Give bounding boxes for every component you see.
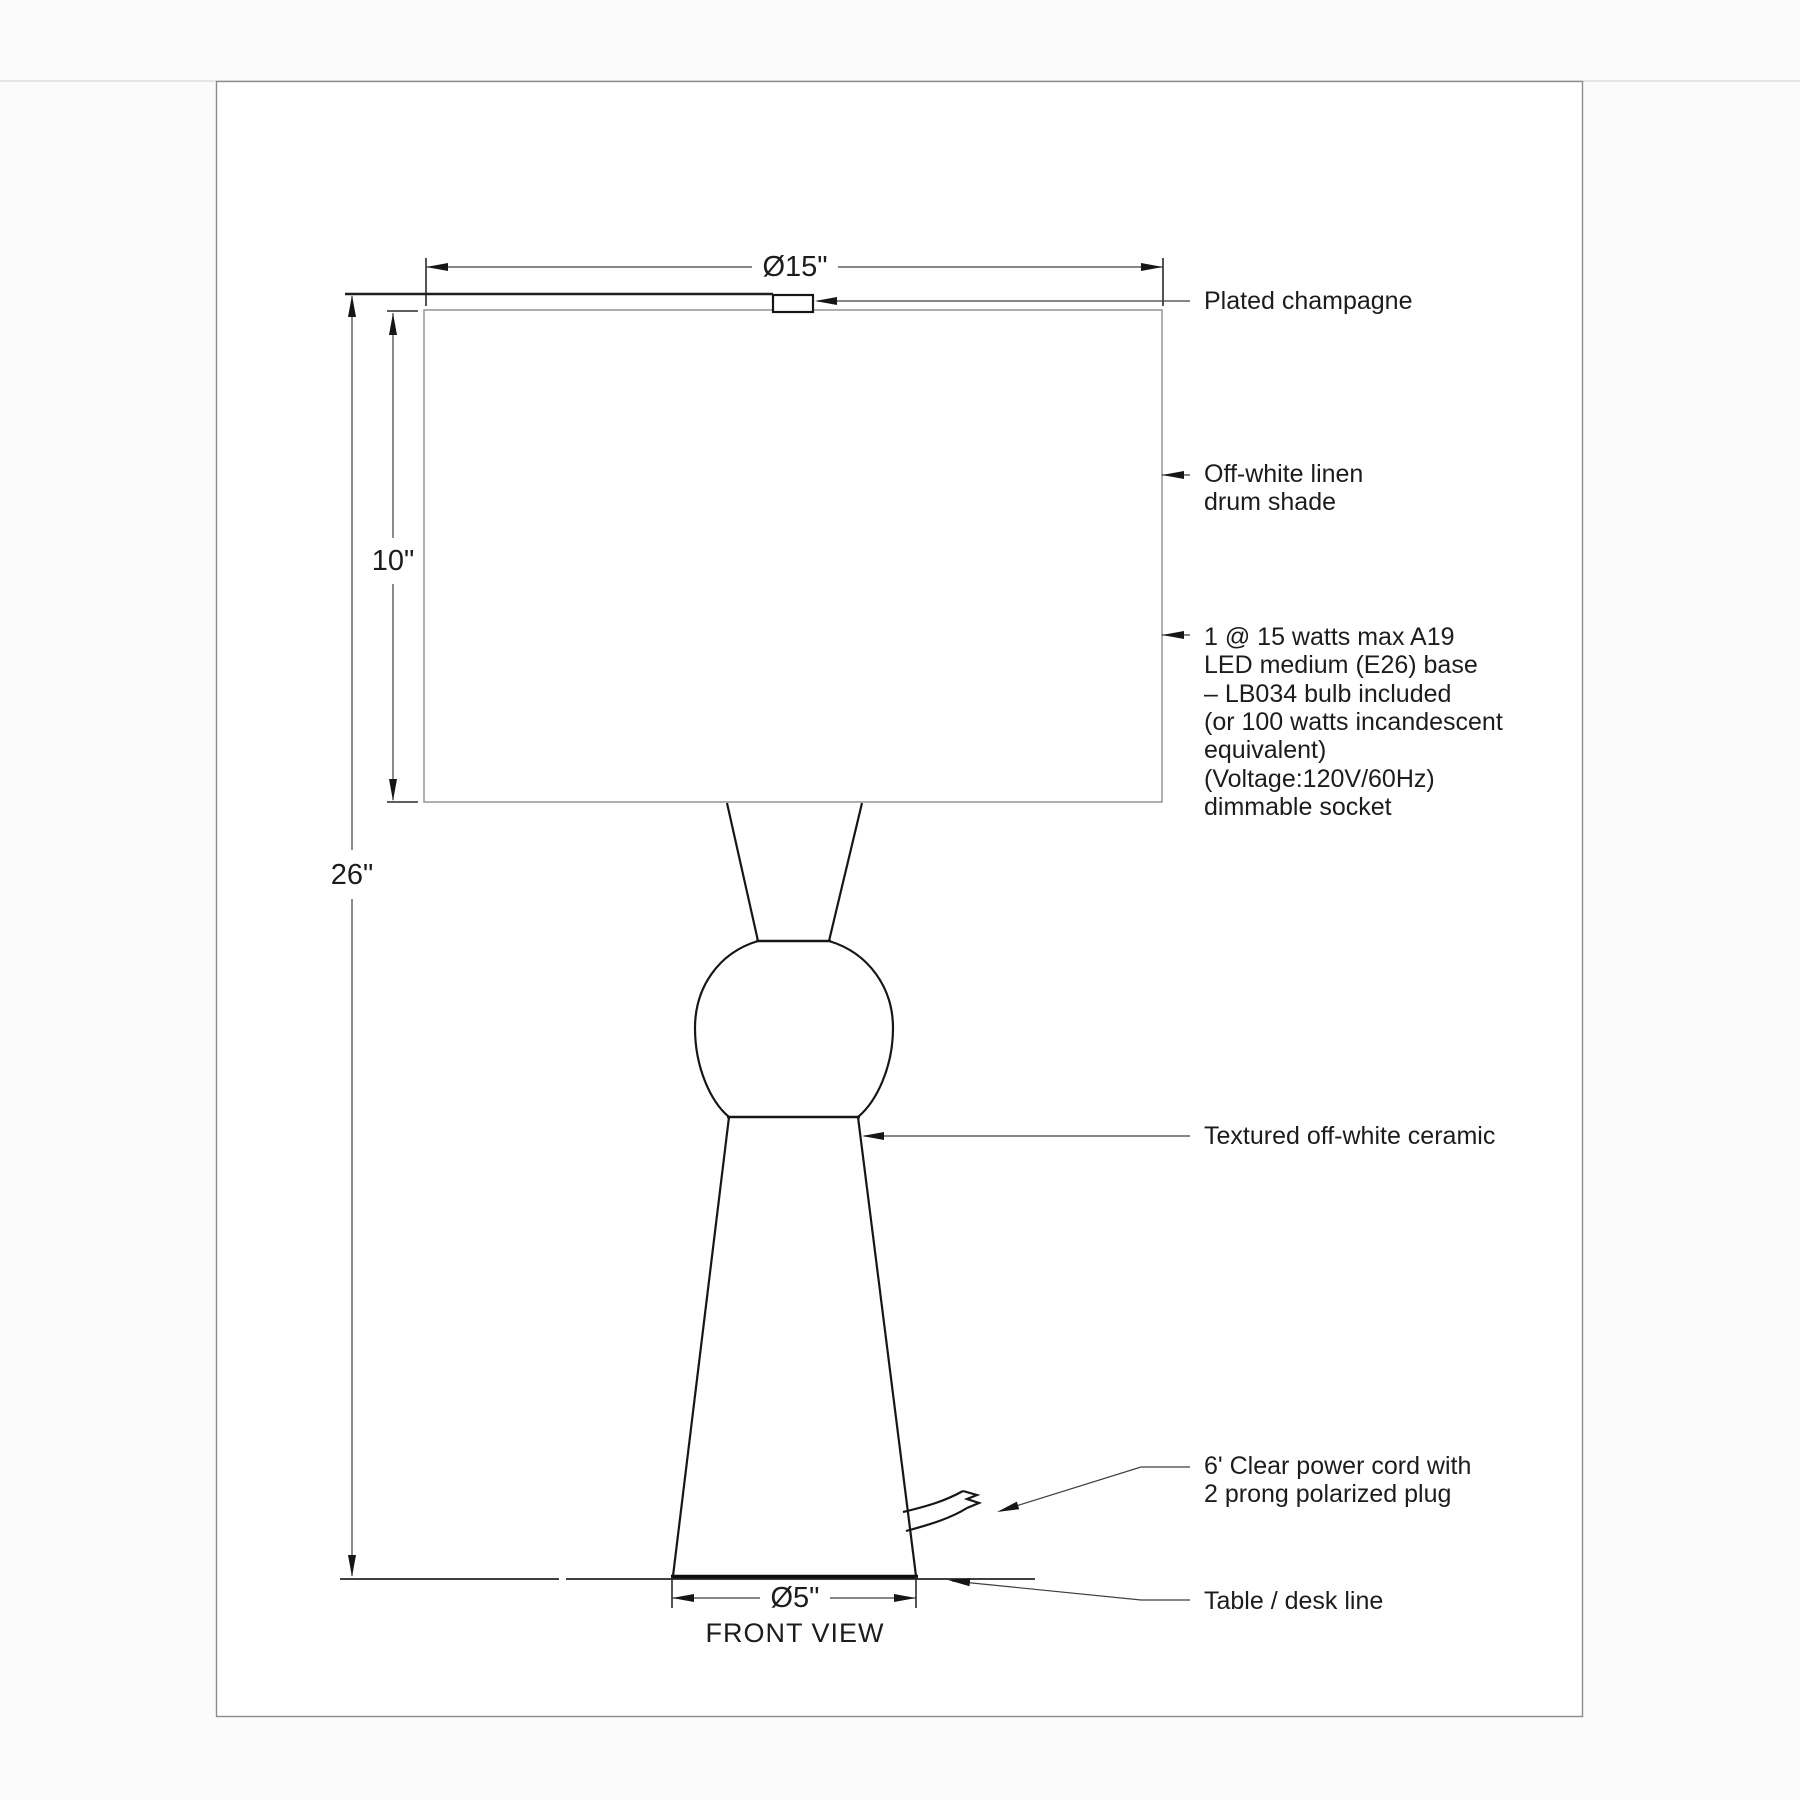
bulb-annotation-line1: 1 @ 15 watts max A19 [1204, 623, 1455, 651]
lamp-shade [424, 310, 1162, 802]
shade-diameter-label: Ø15" [762, 251, 827, 283]
finial-outline [773, 295, 813, 312]
lamp-finial [773, 295, 813, 312]
bulb-annotation-line2: LED medium (E26) base [1204, 651, 1478, 679]
bulb-annotation-line6: (Voltage:120V/60Hz) [1204, 765, 1435, 793]
bulb-annotation-line3: – LB034 bulb included [1204, 680, 1451, 708]
table-annotation: Table / desk line [1204, 1587, 1383, 1615]
technical-drawing-page: Ø15" 26" 10" [0, 0, 1800, 1800]
shade-annotation-line2: drum shade [1204, 488, 1336, 516]
body-annotation: Textured off-white ceramic [1204, 1122, 1495, 1150]
shade-height-label: 10" [372, 545, 415, 577]
cord-annotation-line2: 2 prong polarized plug [1204, 1480, 1451, 1508]
bulb-annotation-line4: (or 100 watts incandescent [1204, 708, 1503, 736]
cord-annotation-line1: 6' Clear power cord with [1204, 1452, 1471, 1480]
front-view-label: FRONT VIEW [705, 1618, 884, 1648]
lamp-spec-drawing: Ø15" 26" 10" [0, 0, 1800, 1800]
total-height-label: 26" [331, 859, 374, 891]
shade-annotation-line1: Off-white linen [1204, 460, 1363, 488]
bulb-annotation-line7: dimmable socket [1204, 793, 1392, 821]
base-diameter-label: Ø5" [771, 1582, 820, 1614]
drum-shade-outline [424, 310, 1162, 802]
bulb-annotation-line5: equivalent) [1204, 736, 1326, 764]
finial-annotation: Plated champagne [1204, 287, 1412, 315]
